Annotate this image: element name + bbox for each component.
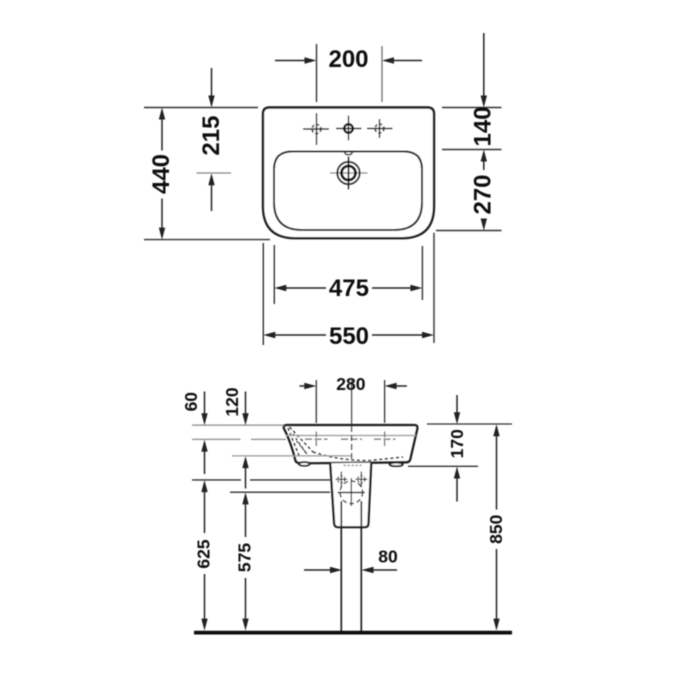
svg-text:60: 60 [181, 392, 201, 412]
svg-text:550: 550 [329, 323, 369, 350]
svg-text:440: 440 [148, 154, 175, 194]
svg-text:475: 475 [329, 275, 369, 302]
svg-text:280: 280 [336, 374, 365, 394]
svg-text:80: 80 [378, 546, 398, 566]
svg-text:270: 270 [470, 174, 497, 214]
svg-text:575: 575 [235, 543, 255, 572]
svg-text:850: 850 [486, 514, 506, 543]
svg-text:215: 215 [198, 116, 225, 156]
svg-text:625: 625 [193, 539, 213, 568]
svg-text:170: 170 [447, 429, 467, 458]
svg-text:200: 200 [328, 46, 368, 73]
svg-text:140: 140 [470, 106, 497, 146]
svg-text:120: 120 [222, 387, 242, 416]
